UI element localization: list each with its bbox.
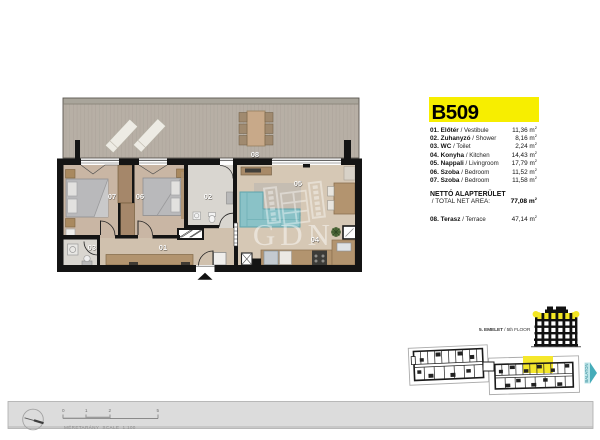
svg-text:05: 05 xyxy=(294,179,302,188)
svg-text:06: 06 xyxy=(136,192,144,201)
svg-text:07: 07 xyxy=(108,192,116,201)
svg-text:08: 08 xyxy=(251,150,259,159)
svg-text:MÉRETARÁNY SCALE 1:100: MÉRETARÁNY SCALE 1:100 xyxy=(64,424,136,430)
svg-text:02: 02 xyxy=(204,192,212,201)
svg-text:BALATON: BALATON xyxy=(584,363,589,382)
svg-text:5: 5 xyxy=(157,408,160,413)
svg-text:04: 04 xyxy=(311,235,320,244)
svg-text:03: 03 xyxy=(88,243,96,252)
svg-text:0: 0 xyxy=(62,408,65,413)
svg-text:2: 2 xyxy=(109,408,112,413)
svg-text:01: 01 xyxy=(159,243,167,252)
svg-text:1: 1 xyxy=(85,408,88,413)
svg-text:GDN: GDN xyxy=(253,217,335,252)
